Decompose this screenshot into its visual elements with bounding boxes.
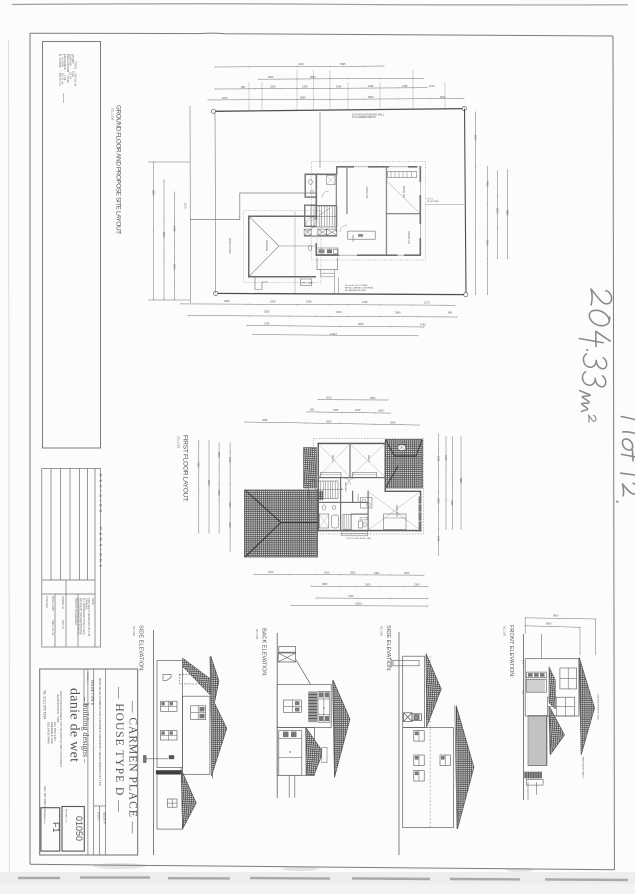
svg-text:2410: 2410	[324, 572, 330, 575]
svg-text:5300: 5300	[162, 232, 165, 238]
svg-text:BED 1: BED 1	[331, 455, 334, 463]
svg-text:2850: 2850	[322, 583, 328, 586]
svg-text:3010: 3010	[326, 397, 332, 400]
svg-text:12210: 12210	[330, 333, 338, 336]
svg-text:1270: 1270	[429, 85, 435, 88]
svg-text:2300: 2300	[217, 452, 220, 458]
svg-text:1420: 1420	[228, 457, 231, 463]
svg-text:1540: 1540	[336, 311, 342, 314]
svg-text:1460: 1460	[378, 409, 384, 412]
svg-text:Tel. (011) 975 7294: Tel. (011) 975 7294	[43, 690, 47, 719]
svg-text:KITCH: KITCH	[351, 235, 354, 242]
svg-text:2550: 2550	[350, 572, 356, 575]
svg-text:8850: 8850	[546, 623, 552, 626]
svg-text:3260: 3260	[404, 572, 410, 575]
svg-text:3470: 3470	[268, 571, 274, 574]
svg-text:1890: 1890	[224, 300, 230, 303]
svg-text:SCL 1:50: SCL 1:50	[255, 629, 258, 640]
svg-text:950: 950	[310, 409, 315, 412]
svg-text:2300: 2300	[374, 572, 380, 575]
svg-text:– building designs –: – building designs –	[81, 696, 90, 764]
svg-text:STUDY: STUDY	[357, 494, 359, 502]
svg-text:35 W HIGH BOUNDARY WALL: 35 W HIGH BOUNDARY WALL	[352, 113, 385, 116]
svg-text:SCL 1:50: SCL 1:50	[503, 626, 506, 637]
svg-text:GRD. TANK: GRD. TANK	[301, 282, 313, 285]
svg-text:3010: 3010	[268, 76, 274, 79]
svg-text:1800: 1800	[172, 264, 175, 270]
svg-text:GOLDFOX PARK: GOLDFOX PARK	[47, 722, 51, 744]
svg-text:IN FUTURE: IN FUTURE	[427, 201, 439, 203]
svg-text:— CARMEN PLACE —: — CARMEN PLACE —	[127, 700, 139, 834]
svg-text:13810: 13810	[355, 602, 362, 605]
svg-text:01050 P: 01050 P	[103, 812, 107, 824]
svg-text:1460: 1460	[368, 85, 374, 88]
svg-text:FIRST FLOOR LAYOUT:: FIRST FLOOR LAYOUT:	[182, 435, 189, 502]
svg-text:PORTED TO DESIGNER.: PORTED TO DESIGNER.	[74, 598, 77, 626]
svg-text:SOUTH AFRICAN COUNCIL FOR THE: SOUTH AFRICAN COUNCIL FOR THE ARCHITECTU…	[59, 691, 62, 767]
svg-text:7320: 7320	[348, 595, 354, 598]
svg-text:NOTE:: NOTE:	[91, 598, 94, 606]
svg-text:(2.0): (2.0)	[184, 203, 188, 208]
svg-text:1ST FLOOR LEVEL LINE: 1ST FLOOR LEVEL LINE	[346, 538, 371, 540]
svg-text:BACK ELEVATION:: BACK ELEVATION:	[261, 628, 267, 677]
svg-text:PROJECT No.: PROJECT No.	[65, 809, 67, 824]
svg-text:SCL 1:50: SCL 1:50	[380, 626, 383, 637]
svg-text:TOTAL : 204.33 m²: TOTAL : 204.33 m²	[74, 61, 78, 86]
svg-text:SHEET: SHEET	[97, 812, 100, 821]
svg-text:1760: 1760	[420, 323, 426, 326]
svg-text:REVISION - PERSIONS: REVISION - PERSIONS	[99, 474, 103, 570]
svg-text:2850: 2850	[370, 397, 376, 400]
svg-text:GROUND FLOOR AND PROPOSE SITE: GROUND FLOOR AND PROPOSE SITE LAYOUT:	[115, 105, 122, 235]
svg-text:2260: 2260	[270, 86, 276, 89]
svg-text:1355: 1355	[306, 301, 312, 304]
svg-text:AT A AGREE BOUND: AT A AGREE BOUND	[345, 289, 366, 292]
svg-text:SCALE 1:100: SCALE 1:100	[51, 596, 54, 611]
svg-text:5200: 5200	[440, 96, 446, 99]
svg-text:1600: 1600	[217, 490, 220, 496]
svg-text:PAVED DRIVE: PAVED DRIVE	[228, 238, 231, 254]
svg-text:1760: 1760	[436, 456, 439, 462]
svg-text:8850: 8850	[459, 478, 462, 484]
svg-text:1355: 1355	[333, 409, 339, 412]
svg-text:CHECKED: CHECKED	[45, 596, 48, 608]
svg-text:4360: 4360	[450, 500, 453, 506]
svg-text:CONCRETE ROOF TILES: CONCRETE ROOF TILES	[597, 694, 599, 720]
svg-text:BRAAI RM: BRAAI RM	[402, 186, 405, 198]
svg-text:SIDE ELEVATION:: SIDE ELEVATION:	[138, 625, 144, 672]
svg-text:SILL: SILL	[522, 690, 524, 695]
svg-text:SCL 1:100: SCL 1:100	[111, 108, 115, 121]
svg-text:01050: 01050	[74, 816, 84, 841]
svg-text:5120: 5120	[197, 462, 200, 468]
svg-text:2300: 2300	[436, 498, 439, 504]
svg-text:1900: 1900	[228, 522, 231, 528]
svg-text:8850: 8850	[505, 210, 508, 216]
svg-text:2450: 2450	[172, 226, 175, 232]
svg-text:2630: 2630	[264, 311, 270, 314]
svg-text:2260: 2260	[270, 300, 276, 303]
svg-text:BED 2: BED 2	[367, 455, 370, 463]
svg-text:4820: 4820	[358, 323, 364, 326]
svg-text:GARAGE: GARAGE	[265, 240, 269, 251]
svg-text:danie de wet: danie de wet	[67, 688, 82, 762]
svg-text:35 mm HI OF UT PAVE: 35 mm HI OF UT PAVE	[345, 284, 368, 287]
svg-text:— HOUSE TYPE D —: — HOUSE TYPE D —	[113, 686, 125, 813]
svg-text:1460: 1460	[362, 301, 368, 304]
svg-text:SIDE ELEVATION:: SIDE ELEVATION:	[385, 625, 391, 672]
svg-text:FRONT ELEVATION:: FRONT ELEVATION:	[508, 625, 514, 678]
svg-text:2640: 2640	[390, 421, 396, 424]
svg-text:APP: dd: APP: dd	[61, 620, 64, 629]
svg-text:950: 950	[241, 86, 246, 89]
svg-text:FACE BRICK WALLS: FACE BRICK WALLS	[582, 757, 585, 778]
svg-text:3760: 3760	[485, 181, 488, 187]
svg-text:1380: 1380	[402, 85, 408, 88]
svg-text:2260: 2260	[414, 584, 420, 587]
svg-text:2300: 2300	[365, 583, 371, 586]
svg-text:5470: 5470	[222, 97, 228, 100]
svg-text:SCL 1:100: SCL 1:100	[177, 436, 181, 449]
svg-text:DRAWN: dd: DRAWN: dd	[61, 596, 64, 610]
svg-text:1270: 1270	[424, 301, 430, 304]
svg-text:NEW DEVELOPMENT FOR ERASMUS PR: NEW DEVELOPMENT FOR ERASMUS PROPERTY DEV…	[98, 678, 102, 787]
svg-text:MAIN BED: MAIN BED	[395, 505, 398, 517]
svg-text:5640: 5640	[368, 96, 374, 99]
svg-text:1540: 1540	[336, 85, 342, 88]
svg-text:3210: 3210	[495, 208, 498, 214]
svg-text:9600: 9600	[553, 615, 559, 618]
svg-text:1240: 1240	[355, 409, 361, 412]
svg-text:1355: 1355	[302, 86, 308, 89]
svg-text:F1: F1	[51, 822, 61, 833]
svg-text:AT A AGREED HEIGHT: AT A AGREED HEIGHT	[352, 116, 377, 119]
svg-text:1420: 1420	[436, 536, 439, 542]
svg-text:DINING RM: DINING RM	[407, 231, 410, 244]
svg-text:6000: 6000	[473, 135, 476, 141]
svg-text:DRAWING No.: DRAWING No.	[43, 810, 46, 825]
svg-text:2000: 2000	[228, 502, 231, 508]
svg-text:CEL: 082 4568 114: CEL: 082 4568 114	[43, 786, 47, 810]
svg-text:LANDING: LANDING	[344, 482, 347, 492]
svg-text:1200: 1200	[298, 63, 304, 66]
svg-text:9210: 9210	[207, 480, 210, 486]
svg-text:5560: 5560	[300, 97, 306, 100]
svg-text:4210: 4210	[444, 455, 447, 461]
svg-text:980: 980	[448, 312, 453, 315]
svg-text:2850: 2850	[310, 76, 316, 79]
svg-text:2640: 2640	[395, 311, 401, 314]
svg-text:DATE: JUL 01: DATE: JUL 01	[51, 620, 54, 636]
svg-text:8850: 8850	[151, 190, 154, 196]
svg-text:REGISTRATION Nr : T0406: REGISTRATION Nr : T0406	[56, 694, 59, 723]
svg-text:BRI ALL TARGE COVERING: BRI ALL TARGE COVERING	[345, 287, 373, 290]
svg-text:SCL 1:50: SCL 1:50	[132, 626, 135, 637]
svg-text:2640: 2640	[485, 240, 488, 246]
svg-text:3695: 3695	[262, 419, 268, 422]
svg-text:4820: 4820	[326, 420, 332, 423]
svg-text:PROJECT:: PROJECT:	[86, 672, 88, 683]
svg-text:2700: 2700	[264, 323, 270, 326]
svg-text:3695: 3695	[340, 63, 346, 66]
svg-text:LIVING RM: LIVING RM	[365, 186, 368, 198]
